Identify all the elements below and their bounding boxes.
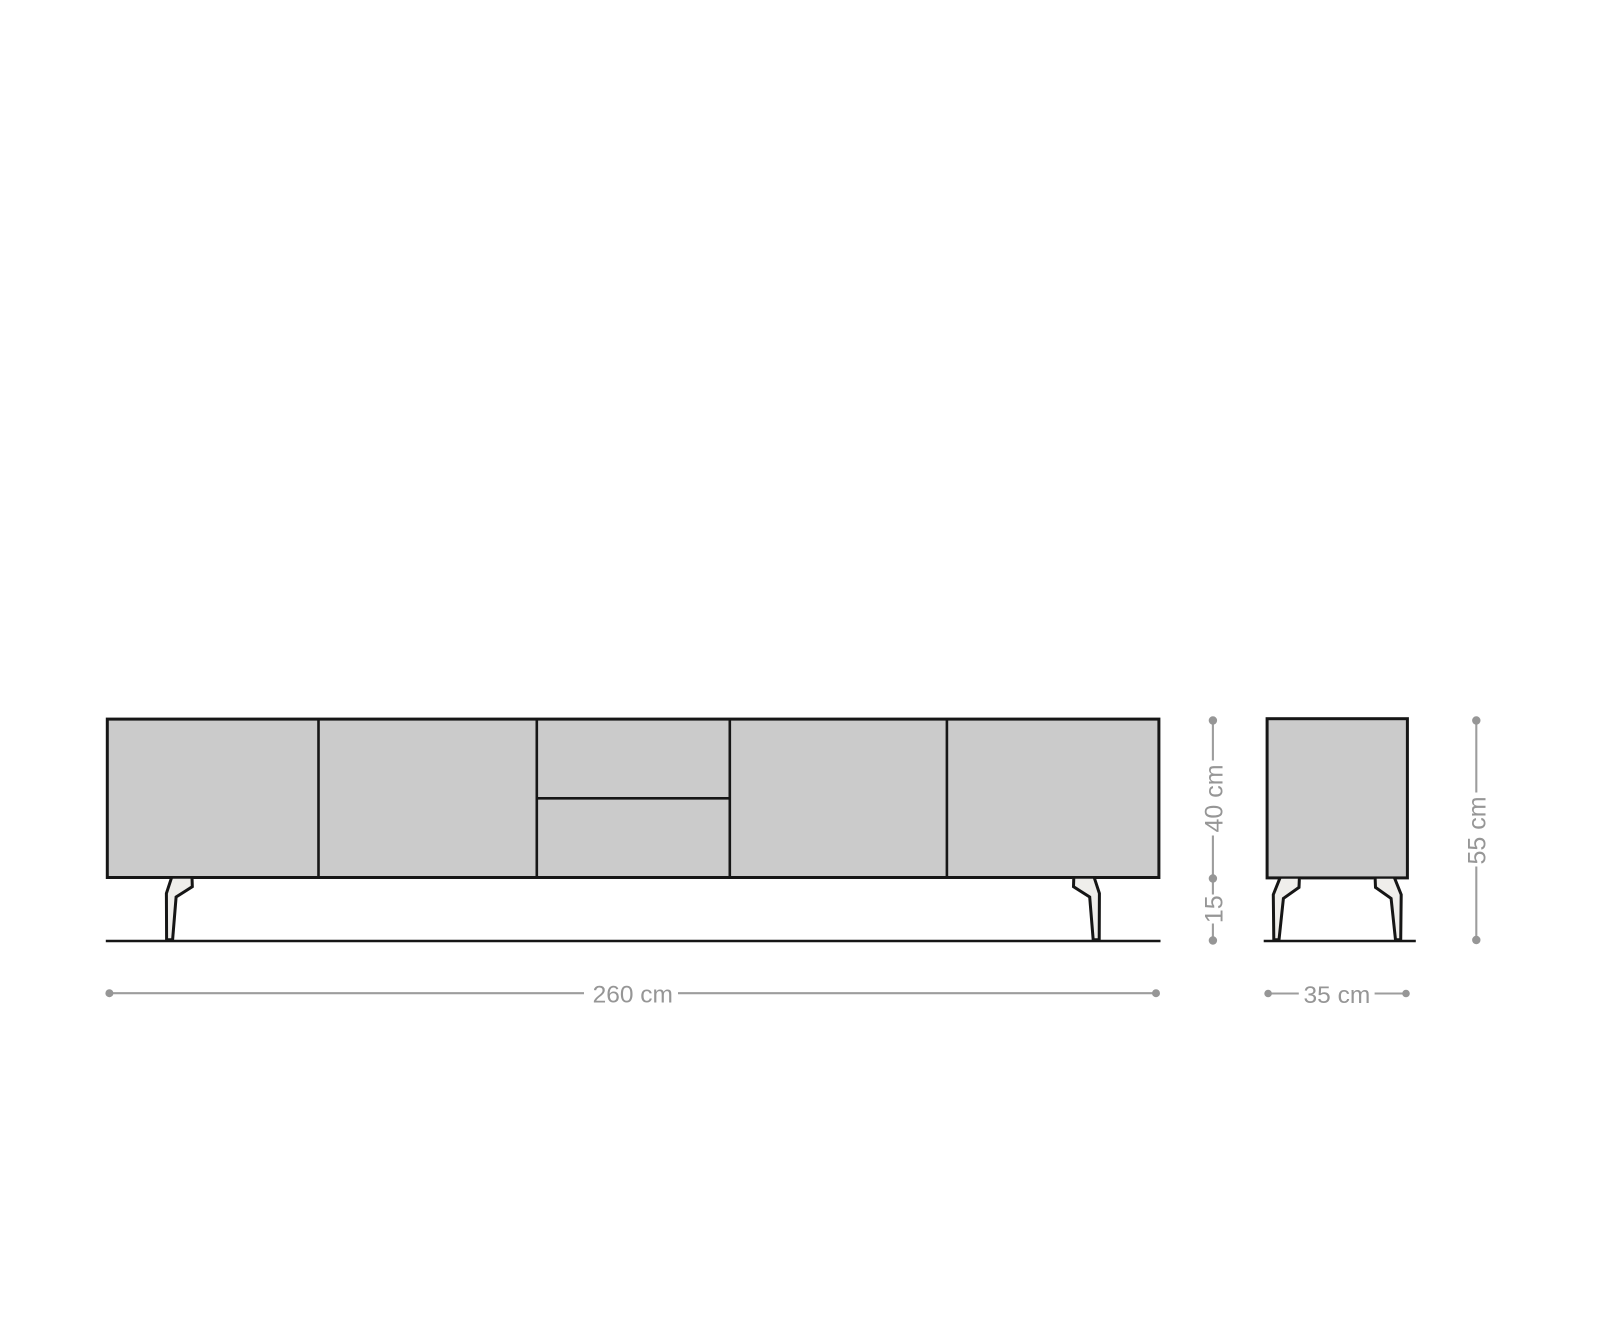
svg-text:55 cm: 55 cm [1464, 796, 1492, 864]
svg-text:40 cm: 40 cm [1201, 764, 1229, 832]
svg-text:15: 15 [1201, 895, 1229, 923]
svg-text:260 cm: 260 cm [593, 981, 673, 1008]
svg-text:35 cm: 35 cm [1304, 982, 1371, 1009]
